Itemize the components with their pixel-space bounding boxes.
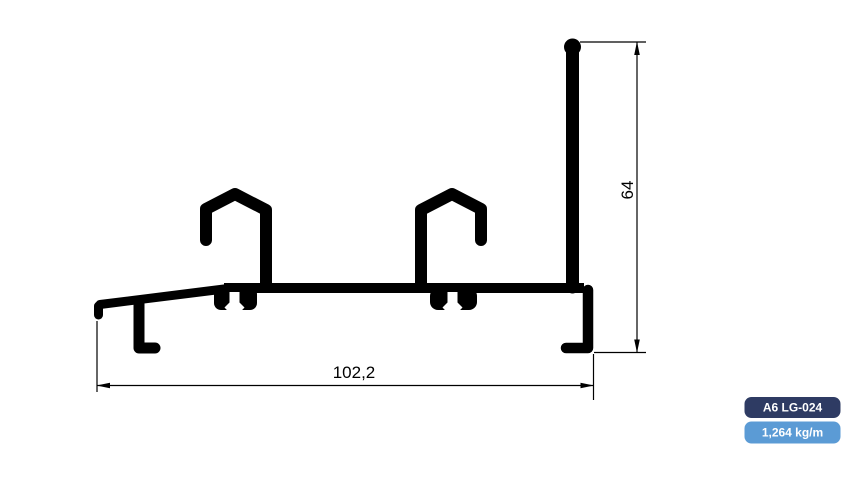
screw-ports [225,292,463,318]
arrow-right [581,383,595,389]
arrow-left [97,383,111,389]
technical-drawing-canvas: 102,2 64 A6 LG-024 1,264 kg/m [0,0,846,496]
hook-right [421,194,481,287]
profile-drawing-svg: 102,2 64 A6 LG-024 1,264 kg/m [0,0,846,496]
profile-code-label: A6 LG-024 [763,401,823,415]
left-leg-and-foot [139,303,155,348]
sloped-flange [100,289,228,305]
hook-left [206,194,266,287]
arrow-up [634,42,640,56]
height-dimension-label: 64 [618,181,637,200]
profile-badges: A6 LG-024 1,264 kg/m [745,397,841,444]
right-wall-and-foot [566,290,588,348]
fin-top-cap [564,39,581,56]
profile-outline [99,46,589,348]
profile-weight-label: 1,264 kg/m [762,426,823,440]
width-dimension-label: 102,2 [333,363,376,382]
dimension-arrows [97,42,640,389]
arrow-down [634,340,640,353]
